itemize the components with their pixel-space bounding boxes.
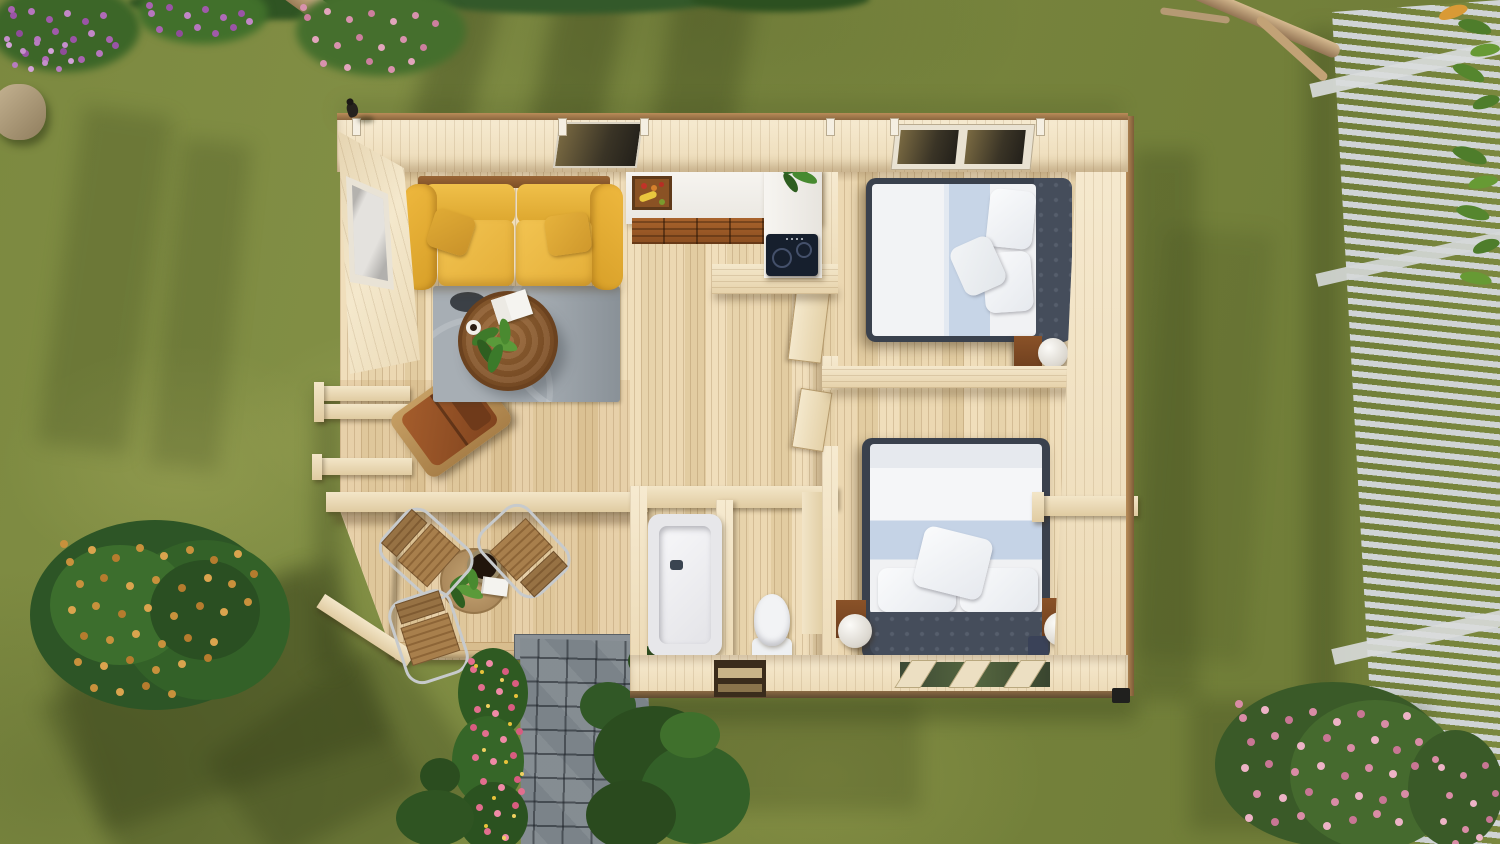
top-wall-post: [890, 118, 899, 136]
top-wall-post: [1036, 118, 1045, 136]
rock: [0, 84, 46, 140]
garden-house-aerial-render: [0, 0, 1500, 844]
bed2-headboard: [870, 612, 1044, 656]
pergola-arm: [316, 458, 412, 475]
bathtub: [648, 514, 722, 656]
top-wall-post: [826, 118, 835, 136]
drainpipe: [1112, 688, 1130, 703]
bottom-wall-outer-edge: [630, 691, 1128, 698]
cooktop: [766, 234, 818, 276]
top-wall-post: [558, 118, 567, 136]
fruit-tray: [632, 176, 672, 210]
bed2-lamp: [838, 614, 872, 648]
bottom-wall: [630, 655, 1128, 695]
right-wall-brace-cap: [1032, 492, 1044, 522]
bathroom-left-wall: [630, 486, 647, 668]
pergola-arm-cap: [314, 382, 324, 422]
bed1-headboard: [1034, 178, 1072, 342]
throw-pillow: [543, 211, 592, 257]
pergola-arm-cap: [312, 454, 322, 480]
right-wall-outer-edge: [1126, 116, 1134, 696]
house-shadow: [314, 390, 342, 670]
tub-faucet: [670, 560, 683, 570]
bed1-pillow: [985, 188, 1037, 250]
bed1-lamp: [1038, 338, 1068, 368]
bird-shadow: [358, 116, 374, 123]
pergola-beam: [326, 492, 648, 512]
house-shadow: [1132, 150, 1198, 700]
right-wall-brace: [1036, 496, 1138, 516]
bedroom1-window: [891, 124, 1036, 170]
kitchen-cabinet-front: [632, 218, 764, 244]
sofa: [404, 174, 622, 294]
front-door-recess: [714, 660, 766, 697]
bathroom-door-panel: [802, 492, 824, 634]
top-wall-post: [640, 118, 649, 136]
